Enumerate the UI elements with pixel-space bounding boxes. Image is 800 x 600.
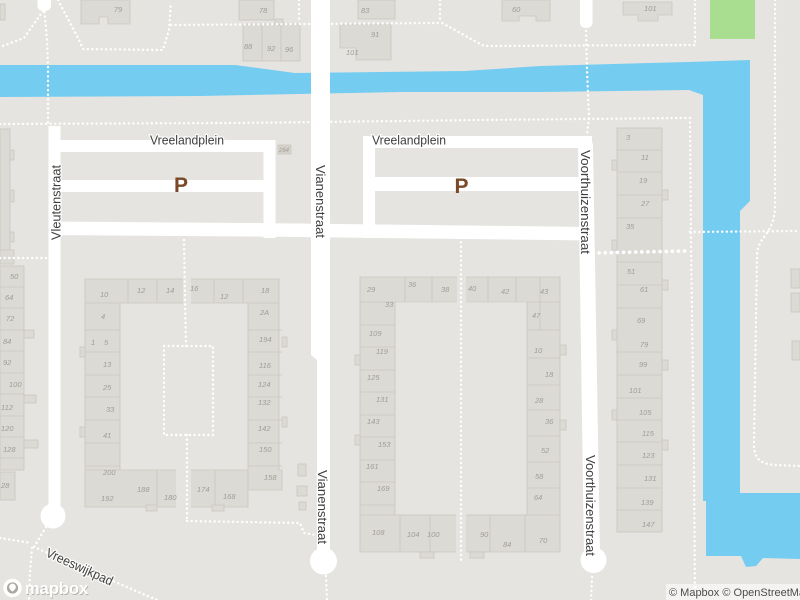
svg-text:Vreelandplein: Vreelandplein bbox=[150, 133, 224, 148]
svg-text:153: 153 bbox=[378, 440, 391, 449]
svg-text:P: P bbox=[174, 174, 188, 197]
svg-text:128: 128 bbox=[3, 445, 16, 454]
svg-text:10: 10 bbox=[100, 290, 109, 299]
svg-text:36: 36 bbox=[545, 417, 554, 426]
svg-text:28: 28 bbox=[0, 481, 10, 490]
svg-text:92: 92 bbox=[3, 358, 12, 367]
svg-text:120: 120 bbox=[1, 424, 14, 433]
svg-text:161: 161 bbox=[366, 462, 379, 471]
svg-text:Vreelandplein: Vreelandplein bbox=[372, 133, 446, 148]
svg-text:96: 96 bbox=[285, 45, 294, 54]
svg-text:P: P bbox=[454, 175, 468, 198]
svg-text:18: 18 bbox=[261, 286, 270, 295]
svg-text:1: 1 bbox=[91, 338, 95, 347]
svg-text:112: 112 bbox=[1, 403, 14, 412]
svg-text:131: 131 bbox=[644, 474, 657, 483]
svg-text:35: 35 bbox=[626, 222, 635, 231]
svg-text:41: 41 bbox=[103, 431, 111, 440]
svg-text:61: 61 bbox=[640, 285, 648, 294]
svg-text:19: 19 bbox=[639, 176, 648, 185]
svg-text:14: 14 bbox=[166, 286, 174, 295]
svg-text:99: 99 bbox=[639, 360, 648, 369]
svg-text:42: 42 bbox=[501, 287, 510, 296]
svg-text:60: 60 bbox=[512, 5, 521, 14]
svg-text:119: 119 bbox=[376, 347, 389, 356]
svg-text:132: 132 bbox=[258, 398, 271, 407]
svg-text:11: 11 bbox=[641, 153, 649, 162]
svg-text:64: 64 bbox=[534, 493, 542, 502]
svg-text:100: 100 bbox=[9, 380, 22, 389]
svg-text:147: 147 bbox=[642, 520, 655, 529]
svg-text:90: 90 bbox=[480, 530, 489, 539]
svg-text:100: 100 bbox=[427, 530, 440, 539]
svg-text:139: 139 bbox=[641, 498, 654, 507]
svg-text:84: 84 bbox=[503, 540, 511, 549]
svg-text:29: 29 bbox=[366, 285, 376, 294]
svg-text:2A: 2A bbox=[259, 308, 269, 317]
svg-text:40: 40 bbox=[468, 284, 477, 293]
svg-text:88: 88 bbox=[244, 42, 253, 51]
svg-text:142: 142 bbox=[258, 424, 271, 433]
svg-text:92: 92 bbox=[267, 44, 276, 53]
svg-text:58: 58 bbox=[535, 472, 544, 481]
svg-text:105: 105 bbox=[639, 408, 652, 417]
svg-text:143: 143 bbox=[367, 417, 380, 426]
svg-text:70: 70 bbox=[539, 536, 548, 545]
svg-text:50: 50 bbox=[10, 272, 19, 281]
svg-text:79: 79 bbox=[114, 5, 123, 14]
svg-text:150: 150 bbox=[259, 445, 272, 454]
svg-text:Voorthuizenstraat: Voorthuizenstraat bbox=[583, 455, 598, 556]
svg-text:52: 52 bbox=[541, 446, 550, 455]
svg-text:83: 83 bbox=[361, 6, 370, 15]
svg-text:264: 264 bbox=[278, 148, 290, 154]
svg-text:200: 200 bbox=[102, 468, 116, 477]
svg-text:174: 174 bbox=[197, 485, 210, 494]
svg-text:18: 18 bbox=[545, 370, 554, 379]
svg-text:101: 101 bbox=[346, 48, 359, 57]
svg-text:Vleutenstraat: Vleutenstraat bbox=[49, 165, 64, 240]
svg-text:mapbox: mapbox bbox=[25, 580, 89, 598]
svg-text:36: 36 bbox=[408, 280, 417, 289]
svg-text:101: 101 bbox=[644, 4, 657, 13]
svg-text:104: 104 bbox=[407, 530, 420, 539]
svg-text:192: 192 bbox=[101, 494, 114, 503]
svg-text:4: 4 bbox=[101, 312, 105, 321]
svg-text:47: 47 bbox=[532, 311, 541, 320]
svg-text:123: 123 bbox=[642, 451, 655, 460]
svg-text:69: 69 bbox=[637, 316, 646, 325]
svg-text:27: 27 bbox=[640, 199, 650, 208]
svg-text:169: 169 bbox=[377, 484, 390, 493]
svg-text:Vianenstraat: Vianenstraat bbox=[315, 470, 330, 544]
svg-text:12: 12 bbox=[137, 286, 146, 295]
svg-text:78: 78 bbox=[259, 6, 268, 15]
svg-text:72: 72 bbox=[6, 314, 15, 323]
svg-text:115: 115 bbox=[642, 429, 655, 438]
svg-text:13: 13 bbox=[103, 360, 112, 369]
svg-text:125: 125 bbox=[367, 373, 380, 382]
svg-text:51: 51 bbox=[627, 267, 635, 276]
svg-text:84: 84 bbox=[3, 337, 11, 346]
svg-text:© Mapbox © OpenStreetMap: © Mapbox © OpenStreetMap bbox=[669, 587, 800, 599]
svg-text:38: 38 bbox=[441, 285, 450, 294]
svg-text:25: 25 bbox=[102, 383, 112, 392]
svg-text:180: 180 bbox=[164, 493, 177, 502]
svg-text:91: 91 bbox=[371, 30, 379, 39]
svg-text:124: 124 bbox=[258, 380, 271, 389]
svg-text:79: 79 bbox=[640, 340, 649, 349]
svg-text:194: 194 bbox=[259, 335, 272, 344]
svg-text:Voorthuizenstraat: Voorthuizenstraat bbox=[578, 150, 593, 254]
svg-text:12: 12 bbox=[220, 292, 229, 301]
svg-text:101: 101 bbox=[629, 386, 642, 395]
svg-text:158: 158 bbox=[264, 473, 277, 482]
svg-text:188: 188 bbox=[137, 485, 150, 494]
svg-text:10: 10 bbox=[534, 346, 543, 355]
svg-text:43: 43 bbox=[540, 287, 549, 296]
svg-text:108: 108 bbox=[372, 528, 385, 537]
svg-text:168: 168 bbox=[223, 492, 236, 501]
svg-text:16: 16 bbox=[190, 284, 199, 293]
svg-text:116: 116 bbox=[259, 361, 272, 370]
svg-text:33: 33 bbox=[106, 405, 115, 414]
svg-text:33: 33 bbox=[385, 300, 394, 309]
svg-text:64: 64 bbox=[5, 293, 13, 302]
svg-text:28: 28 bbox=[534, 396, 544, 405]
svg-text:Vianenstraat: Vianenstraat bbox=[313, 165, 328, 238]
svg-text:109: 109 bbox=[369, 329, 382, 338]
svg-text:131: 131 bbox=[376, 395, 389, 404]
